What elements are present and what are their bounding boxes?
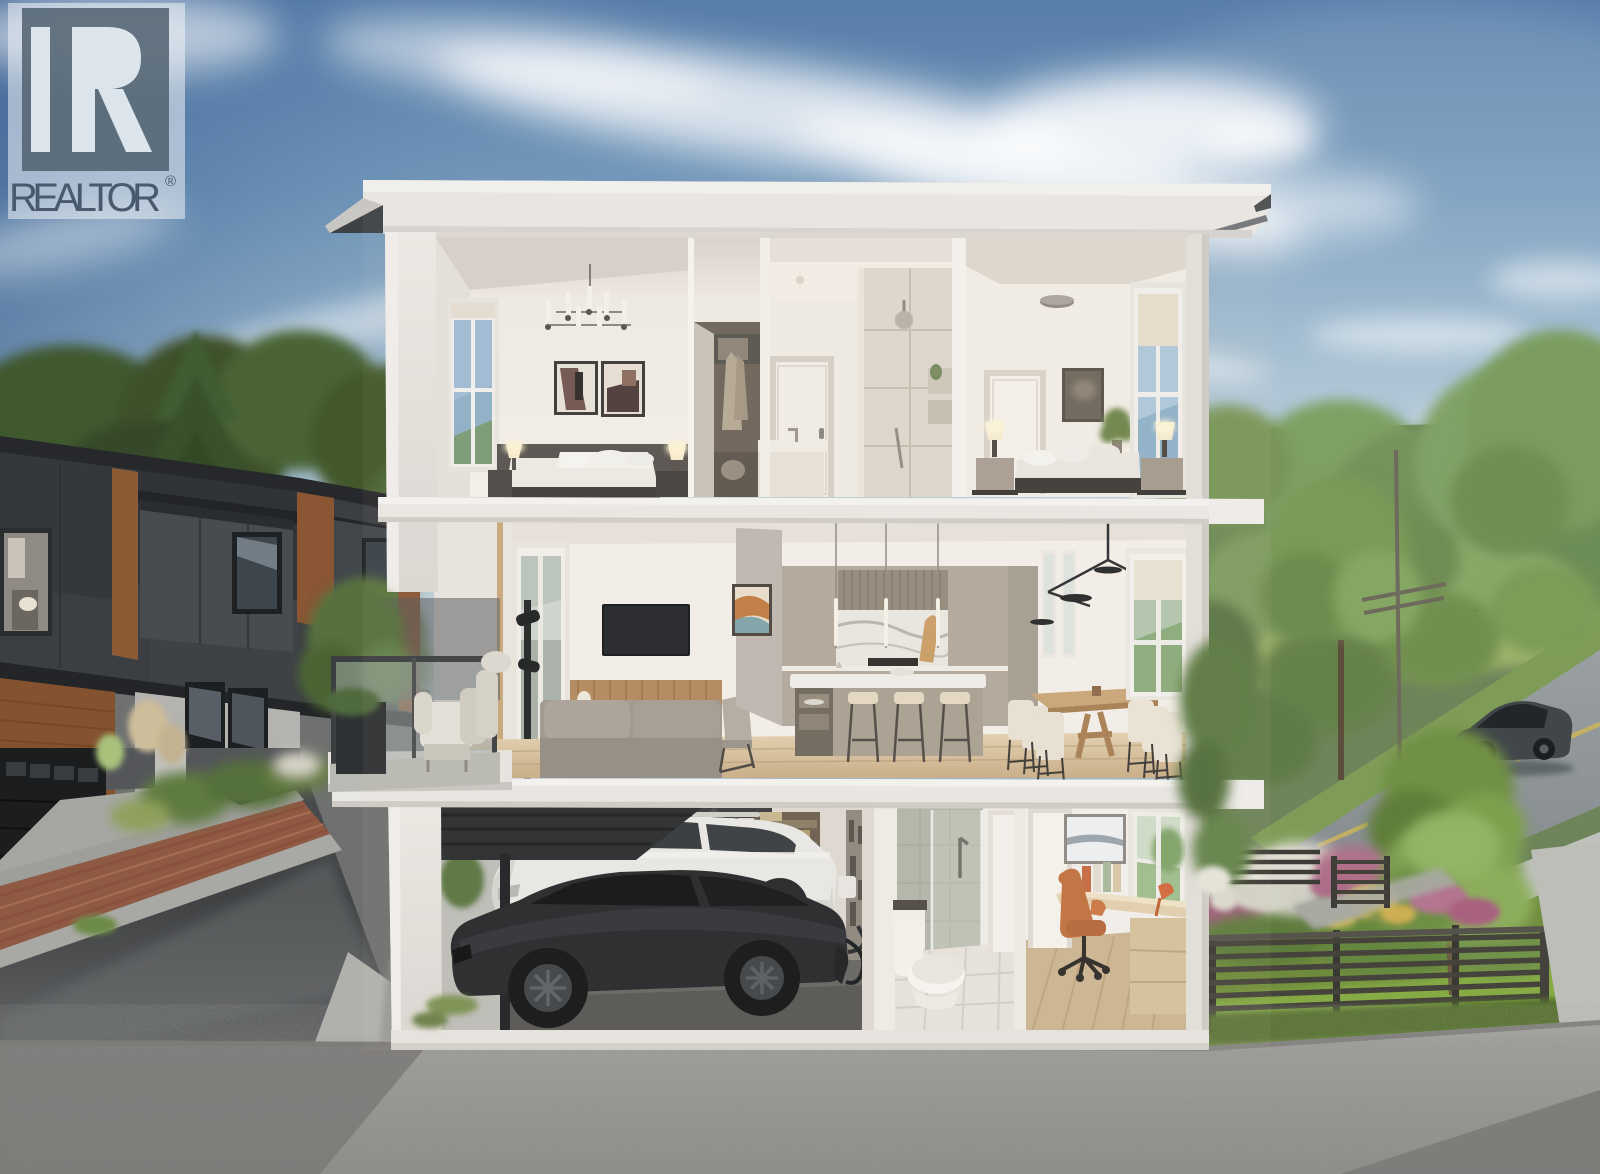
svg-text:REALTOR: REALTOR	[9, 176, 161, 220]
svg-text:®: ®	[165, 173, 176, 190]
